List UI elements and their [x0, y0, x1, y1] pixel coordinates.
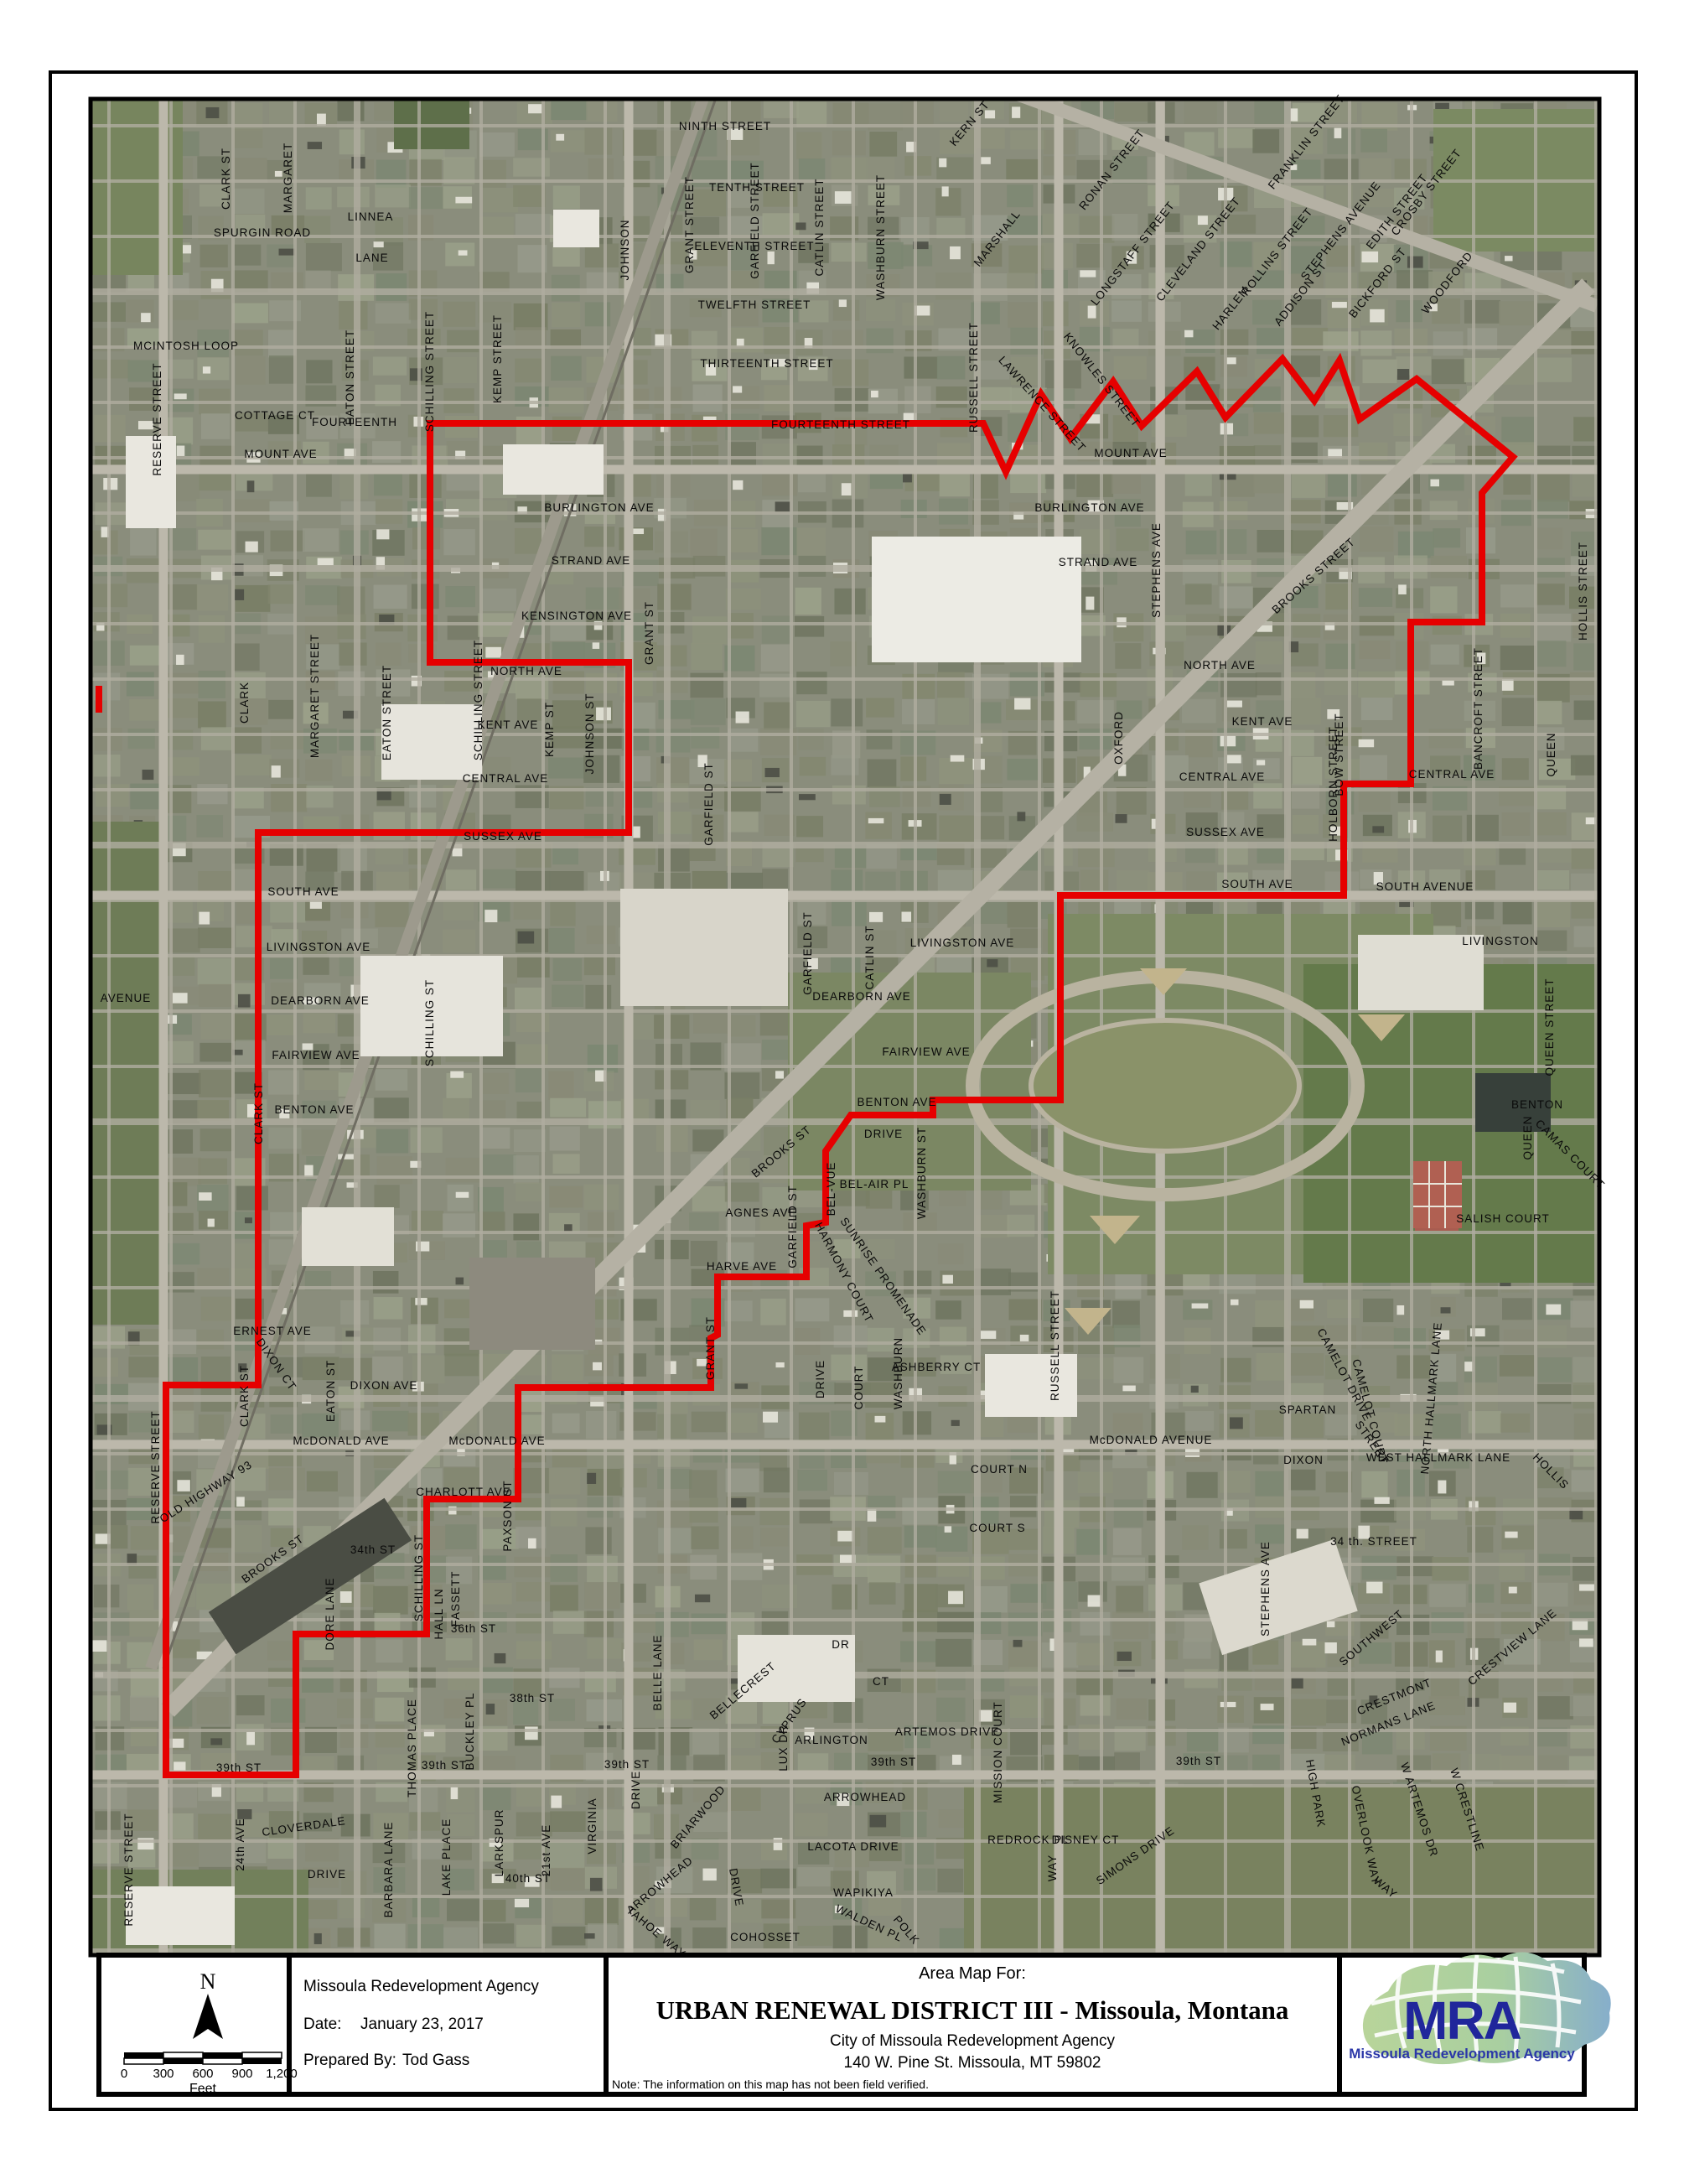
- street-label: LIVINGSTON AVE: [267, 941, 371, 953]
- street-label: THIRTEENTH STREET: [700, 357, 833, 370]
- street-label: WEST HALLMARK LANE: [1366, 1451, 1510, 1464]
- street-label: BARBARA LANE: [382, 1822, 395, 1918]
- street-label: RUSSELL STREET: [1049, 1290, 1061, 1401]
- street-label: JOHNSON ST: [583, 693, 596, 774]
- area-map-for: Area Map For:: [919, 1964, 1026, 1983]
- street-label: STEPHENS AVE: [1259, 1541, 1272, 1637]
- street-label: KENT AVE: [1232, 715, 1293, 728]
- street-label: CENTRAL AVE: [463, 772, 549, 785]
- street-label: MARGARET: [282, 143, 294, 214]
- subtitle-agency: City of Missoula Redevelopment Agency: [830, 2032, 1116, 2050]
- street-label: SCHILLING ST: [412, 1534, 425, 1621]
- street-label: DRIVE: [864, 1128, 903, 1140]
- title-block: N 03006009001,200 Feet Missoula Redevelo…: [99, 1952, 1611, 2096]
- street-label: CT: [873, 1675, 889, 1688]
- street-label: 39th ST: [604, 1758, 650, 1771]
- street-label: LARKSPUR: [493, 1809, 505, 1877]
- street-label: LIVINGSTON: [1462, 935, 1539, 947]
- street-label: CENTRAL AVE: [1409, 768, 1495, 781]
- street-label: McDONALD AVE: [293, 1434, 389, 1447]
- scale-tick: 0: [121, 2067, 127, 2081]
- street-label: 24th AVE: [234, 1818, 246, 1870]
- street-label: HOLBORN STREET: [1327, 726, 1339, 842]
- street-label: EATON ST: [324, 1360, 337, 1422]
- street-label: KEMP ST: [543, 702, 556, 757]
- street-label: SOUTH AVE: [1221, 878, 1293, 890]
- street-label: RUSSELL STREET: [967, 322, 980, 433]
- svg-text:N: N: [200, 1969, 216, 1994]
- street-label: SPURGIN ROAD: [214, 226, 311, 239]
- street-label: CATLIN ST: [863, 925, 876, 989]
- street-label: CHARLOTT AVE: [416, 1486, 511, 1498]
- street-label: BURLINGTON AVE: [1034, 501, 1144, 514]
- map-sheet: { "map": { "red": "#e60000", "boundary":…: [0, 0, 1684, 2180]
- street-label: SCHILLING ST: [423, 979, 436, 1066]
- street-label: SOUTH AVENUE: [1376, 880, 1474, 893]
- subtitle-address: 140 W. Pine St. Missoula, MT 59802: [844, 2054, 1101, 2072]
- mra-logo: MRA Missoula Redevelopment Agency: [1349, 1952, 1610, 2064]
- street-label: MARGARET STREET: [308, 634, 321, 758]
- street-label: CLARK ST: [238, 1365, 251, 1427]
- prepared-value: Tod Gass: [402, 2052, 469, 2069]
- street-label: NORTH AVE: [490, 665, 562, 677]
- street-label: SCHILLING STREET: [423, 311, 436, 432]
- street-label: DRIVE: [308, 1868, 346, 1881]
- date-value: January 23, 2017: [360, 2015, 484, 2033]
- street-label: QUEEN STREET: [1543, 978, 1556, 1076]
- street-label: KENSINGTON AVE: [521, 610, 632, 622]
- page-title: URBAN RENEWAL DISTRICT III - Missoula, M…: [656, 1995, 1289, 2025]
- street-label: COURT N: [971, 1463, 1028, 1476]
- street-label: DRIVE: [630, 1771, 642, 1809]
- tennis-courts: [1413, 1161, 1462, 1228]
- street-label: BEL-VUE: [825, 1162, 837, 1217]
- street-label: THOMAS PLACE: [406, 1699, 418, 1798]
- street-label: QUEEN: [1521, 1115, 1534, 1159]
- street-label: FOURTEENTH STREET: [771, 418, 910, 431]
- street-label: 21st AVE: [540, 1824, 552, 1877]
- street-label: VIRGINIA: [586, 1798, 598, 1854]
- street-label: COHOSSET: [730, 1931, 801, 1943]
- street-label: KENT AVE: [478, 718, 539, 731]
- street-label: FAIRVIEW AVE: [882, 1045, 970, 1058]
- agency-name: Missoula Redevelopment Agency: [303, 1978, 539, 1995]
- street-label: STRAND AVE: [1059, 556, 1138, 568]
- street-label: QUEEN: [1545, 732, 1557, 776]
- street-label: 39th ST: [871, 1756, 916, 1768]
- street-label: DISNEY CT: [1052, 1834, 1120, 1846]
- note-text: Note: The information on this map has no…: [612, 2078, 929, 2091]
- street-label: CLARK ST: [220, 148, 232, 210]
- street-label: GRANT STREET: [683, 176, 696, 273]
- scale-tick: 300: [153, 2067, 174, 2081]
- street-label: LUX DR: [777, 1725, 790, 1772]
- street-label: 39th ST: [422, 1759, 467, 1772]
- street-label: COURT S: [969, 1522, 1025, 1534]
- street-label: FAIRVIEW AVE: [272, 1049, 360, 1061]
- street-label: BENTON AVE: [274, 1103, 354, 1116]
- street-label: OXFORD: [1112, 711, 1125, 765]
- street-label: NINTH STREET: [679, 120, 771, 132]
- street-label: DRIVE: [814, 1360, 826, 1398]
- street-label: GARFIELD ST: [786, 1185, 799, 1268]
- street-label: RESERVE STREET: [122, 1813, 135, 1926]
- street-label: STEPHENS AVE: [1150, 522, 1163, 618]
- street-label: GARFIELD STREET: [749, 162, 761, 279]
- street-label: DIXON AVE: [350, 1379, 418, 1392]
- street-label: WASHBURN ST: [915, 1127, 928, 1219]
- street-label: SUSSEX AVE: [464, 830, 542, 843]
- street-label: LINNEA: [348, 210, 394, 223]
- street-label: SUSSEX AVE: [1186, 826, 1265, 838]
- map-canvas: NINTH STREETTENTH STREETELEVENTH STREETT…: [0, 0, 1684, 2180]
- street-label: LACOTA DRIVE: [807, 1840, 899, 1853]
- street-label: FASSETT: [449, 1570, 462, 1626]
- scale-tick: 1,200: [266, 2067, 298, 2081]
- scale-unit: Feet: [189, 2082, 217, 2096]
- street-label: KEMP STREET: [491, 314, 504, 403]
- street-label: HOLLIS STREET: [1577, 542, 1589, 641]
- street-label: 39th ST: [1176, 1755, 1221, 1767]
- street-label: HARVE AVE: [707, 1260, 777, 1273]
- street-label: NORTH AVE: [1184, 659, 1256, 672]
- street-label: GRANT ST: [704, 1316, 717, 1380]
- street-label: 38th ST: [510, 1692, 555, 1704]
- street-label: McDONALD AVE: [448, 1434, 545, 1447]
- street-label: SALISH COURT: [1456, 1212, 1550, 1225]
- street-label: GARFIELD ST: [702, 762, 715, 846]
- street-label: CENTRAL AVE: [1179, 770, 1266, 783]
- street-label: MOUNT AVE: [244, 448, 317, 460]
- street-label: AVENUE: [101, 992, 152, 1004]
- street-label: 34 th. STREET: [1330, 1535, 1417, 1548]
- street-label: BANCROFT STREET: [1472, 647, 1485, 770]
- street-label: BENTON AVE: [857, 1096, 936, 1108]
- street-label: CLARK: [238, 682, 251, 724]
- logo-text: MRA: [1403, 1990, 1521, 2051]
- street-label: LANE: [355, 252, 388, 264]
- prepared-label: Prepared By:: [303, 2052, 396, 2069]
- street-label: WASHBURN STREET: [874, 174, 887, 300]
- street-label: DIXON: [1283, 1454, 1324, 1466]
- street-label: MCINTOSH LOOP: [133, 340, 239, 352]
- street-label: HALL LN: [433, 1588, 445, 1639]
- street-label: TWELFTH STREET: [698, 298, 811, 311]
- street-label: ARTEMOS DRIVE: [895, 1725, 1000, 1738]
- street-label: EATON STREET: [381, 665, 393, 760]
- street-label: DORE LANE: [324, 1577, 336, 1650]
- street-label: PAXSON ST: [501, 1480, 514, 1551]
- street-label: STRAND AVE: [552, 554, 631, 567]
- street-label: MOUNT AVE: [1094, 447, 1167, 459]
- street-label: WAPIKIYA: [833, 1886, 894, 1899]
- street-label: COURT: [852, 1366, 865, 1410]
- street-label: SPARTAN: [1279, 1403, 1337, 1416]
- street-label: ARROWHEAD: [824, 1791, 906, 1803]
- scale-tick: 600: [192, 2067, 213, 2081]
- logo-subtext: Missoula Redevelopment Agency: [1349, 2046, 1575, 2062]
- date-label: Date:: [303, 2015, 341, 2033]
- street-label: ASHBERRY CT: [892, 1361, 982, 1373]
- street-label: EATON STREET: [344, 329, 356, 425]
- street-label: COTTAGE CT: [235, 409, 315, 422]
- street-label: GARFIELD ST: [801, 911, 814, 995]
- street-label: DEARBORN AVE: [812, 990, 911, 1003]
- street-label: DR: [832, 1638, 850, 1651]
- street-label: ERNEST AVE: [233, 1325, 312, 1337]
- street-label: WAY: [1046, 1855, 1059, 1881]
- street-label: BENTON: [1511, 1098, 1563, 1111]
- street-label: RESERVE STREET: [149, 1410, 162, 1523]
- street-label: DEARBORN AVE: [271, 994, 370, 1007]
- street-label: CATLIN STREET: [813, 178, 826, 276]
- street-label: 36th ST: [451, 1622, 496, 1635]
- street-label: CLARK ST: [252, 1082, 265, 1144]
- street-label: McDONALD AVENUE: [1090, 1434, 1213, 1446]
- street-label: BELLE LANE: [651, 1634, 664, 1710]
- street-label: LIVINGSTON AVE: [910, 936, 1015, 949]
- street-label: BEL-AIR PL: [840, 1178, 909, 1191]
- street-label: JOHNSON: [619, 219, 631, 280]
- street-label: SCHILLING STREET: [472, 640, 484, 760]
- street-label: RESERVE STREET: [151, 362, 163, 475]
- street-label: ARLINGTON: [795, 1734, 868, 1746]
- street-label: SOUTH AVE: [267, 885, 339, 898]
- street-label: GRANT ST: [643, 601, 655, 665]
- street-label: BUCKLEY PL: [464, 1692, 476, 1770]
- street-label: 34th ST: [350, 1543, 396, 1556]
- street-label: MISSION COURT: [992, 1701, 1004, 1803]
- street-label: LAKE PLACE: [440, 1818, 453, 1896]
- street-label: BURLINGTON AVE: [544, 501, 654, 514]
- street-label: WASHBURN: [892, 1337, 904, 1409]
- street-label: 39th ST: [216, 1761, 262, 1774]
- scale-tick: 900: [231, 2067, 252, 2081]
